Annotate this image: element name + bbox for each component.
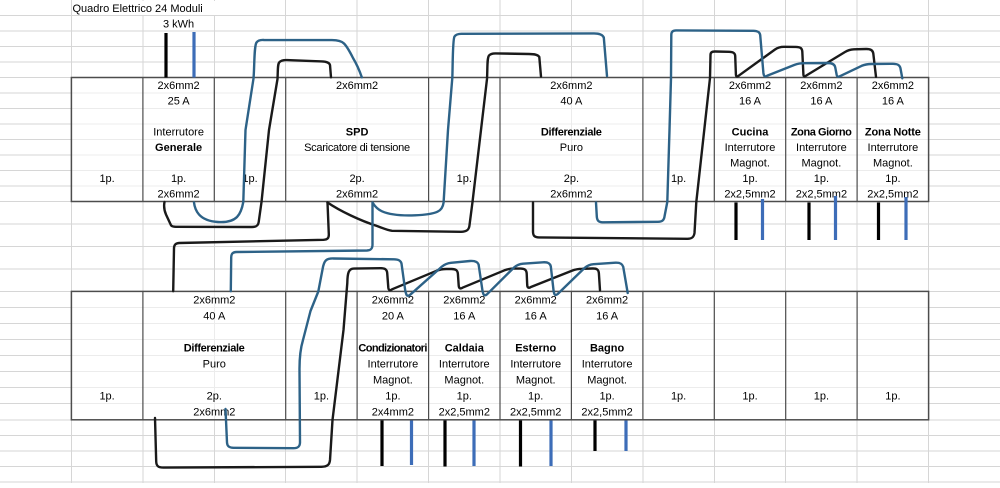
svg-text:1p.: 1p. — [814, 173, 829, 185]
svg-text:16 A: 16 A — [739, 96, 762, 108]
svg-text:16 A: 16 A — [596, 310, 619, 322]
svg-text:Condizionatori: Condizionatori — [358, 343, 427, 355]
svg-text:1p.: 1p. — [171, 173, 186, 185]
svg-text:Interrutore: Interrutore — [582, 359, 633, 371]
svg-text:1p.: 1p. — [457, 173, 472, 185]
svg-text:1p.: 1p. — [99, 173, 114, 185]
svg-text:2x2,5mm2: 2x2,5mm2 — [510, 407, 561, 419]
svg-text:Interrutore: Interrutore — [796, 142, 847, 154]
svg-text:2x6mm2: 2x6mm2 — [550, 189, 592, 201]
svg-text:1p.: 1p. — [742, 173, 757, 185]
svg-text:2x6mm2: 2x6mm2 — [193, 407, 235, 419]
svg-text:2x6mm2: 2x6mm2 — [158, 80, 200, 92]
svg-text:1p.: 1p. — [671, 173, 686, 185]
svg-text:16 A: 16 A — [525, 310, 548, 322]
svg-text:2x6mm2: 2x6mm2 — [550, 80, 592, 92]
svg-text:16 A: 16 A — [453, 310, 476, 322]
svg-text:Magnot.: Magnot. — [802, 158, 842, 170]
svg-text:40 A: 40 A — [203, 310, 226, 322]
svg-text:Scaricatore di tensione: Scaricatore di tensione — [304, 142, 410, 154]
svg-text:2x6mm2: 2x6mm2 — [872, 80, 914, 92]
svg-text:1p.: 1p. — [314, 391, 329, 403]
svg-text:2x6mm2: 2x6mm2 — [443, 294, 485, 306]
svg-text:2x2,5mm2: 2x2,5mm2 — [724, 189, 775, 201]
svg-text:Magnot.: Magnot. — [730, 158, 770, 170]
svg-text:2x6mm2: 2x6mm2 — [586, 294, 628, 306]
svg-text:1p.: 1p. — [671, 391, 686, 403]
svg-text:Interrutore: Interrutore — [153, 127, 204, 139]
svg-text:25 A: 25 A — [168, 96, 191, 108]
svg-text:2x6mm2: 2x6mm2 — [193, 294, 235, 306]
svg-text:SPD: SPD — [346, 127, 369, 139]
svg-text:Interrutore: Interrutore — [439, 359, 490, 371]
svg-text:2x6mm2: 2x6mm2 — [336, 189, 378, 201]
svg-text:1p.: 1p. — [457, 391, 472, 403]
svg-text:1p.: 1p. — [528, 391, 543, 403]
svg-text:Differenziale: Differenziale — [541, 127, 602, 139]
svg-text:Magnot.: Magnot. — [444, 375, 484, 387]
svg-text:Generale: Generale — [155, 142, 202, 154]
svg-text:2x4mm2: 2x4mm2 — [372, 407, 414, 419]
svg-text:2x6mm2: 2x6mm2 — [729, 80, 771, 92]
svg-text:Zona Notte: Zona Notte — [865, 127, 921, 139]
svg-text:Quadro Elettrico 24 Moduli: Quadro Elettrico 24 Moduli — [73, 3, 203, 15]
svg-text:1p.: 1p. — [599, 391, 614, 403]
svg-text:Magnot.: Magnot. — [587, 375, 627, 387]
svg-text:Magnot.: Magnot. — [516, 375, 556, 387]
svg-text:2x2,5mm2: 2x2,5mm2 — [867, 189, 918, 201]
svg-text:2x6mm2: 2x6mm2 — [336, 80, 378, 92]
svg-text:1p.: 1p. — [885, 173, 900, 185]
svg-text:Interrutore: Interrutore — [725, 142, 776, 154]
svg-text:2p.: 2p. — [207, 391, 222, 403]
svg-text:Caldaia: Caldaia — [445, 343, 485, 355]
svg-text:Differenziale: Differenziale — [184, 343, 245, 355]
svg-text:Zona Giorno: Zona Giorno — [791, 127, 852, 139]
svg-text:2p.: 2p. — [564, 173, 579, 185]
svg-text:Magnot.: Magnot. — [373, 375, 413, 387]
svg-text:2x6mm2: 2x6mm2 — [158, 189, 200, 201]
svg-text:Bagno: Bagno — [590, 343, 625, 355]
svg-text:2x6mm2: 2x6mm2 — [800, 80, 842, 92]
svg-text:3 kWh: 3 kWh — [163, 18, 194, 30]
svg-text:Magnot.: Magnot. — [873, 158, 913, 170]
svg-text:Cucina: Cucina — [732, 127, 770, 139]
svg-text:2x6mm2: 2x6mm2 — [515, 294, 557, 306]
svg-text:1p.: 1p. — [814, 391, 829, 403]
svg-text:2x2,5mm2: 2x2,5mm2 — [796, 189, 847, 201]
svg-text:1p.: 1p. — [742, 391, 757, 403]
svg-text:2x2,5mm2: 2x2,5mm2 — [581, 407, 632, 419]
svg-text:1p.: 1p. — [385, 391, 400, 403]
svg-text:Esterno: Esterno — [515, 343, 556, 355]
svg-text:2p.: 2p. — [349, 173, 364, 185]
svg-text:16 A: 16 A — [810, 96, 833, 108]
svg-text:40 A: 40 A — [560, 96, 583, 108]
svg-text:20 A: 20 A — [382, 310, 405, 322]
svg-text:16 A: 16 A — [882, 96, 905, 108]
svg-text:1p.: 1p. — [885, 391, 900, 403]
svg-text:Puro: Puro — [203, 359, 226, 371]
svg-text:1p.: 1p. — [99, 391, 114, 403]
svg-text:2x2,5mm2: 2x2,5mm2 — [439, 407, 490, 419]
svg-text:Interrutore: Interrutore — [368, 359, 419, 371]
svg-text:Puro: Puro — [560, 142, 583, 154]
svg-text:Interrutore: Interrutore — [510, 359, 561, 371]
svg-text:Interrutore: Interrutore — [868, 142, 919, 154]
